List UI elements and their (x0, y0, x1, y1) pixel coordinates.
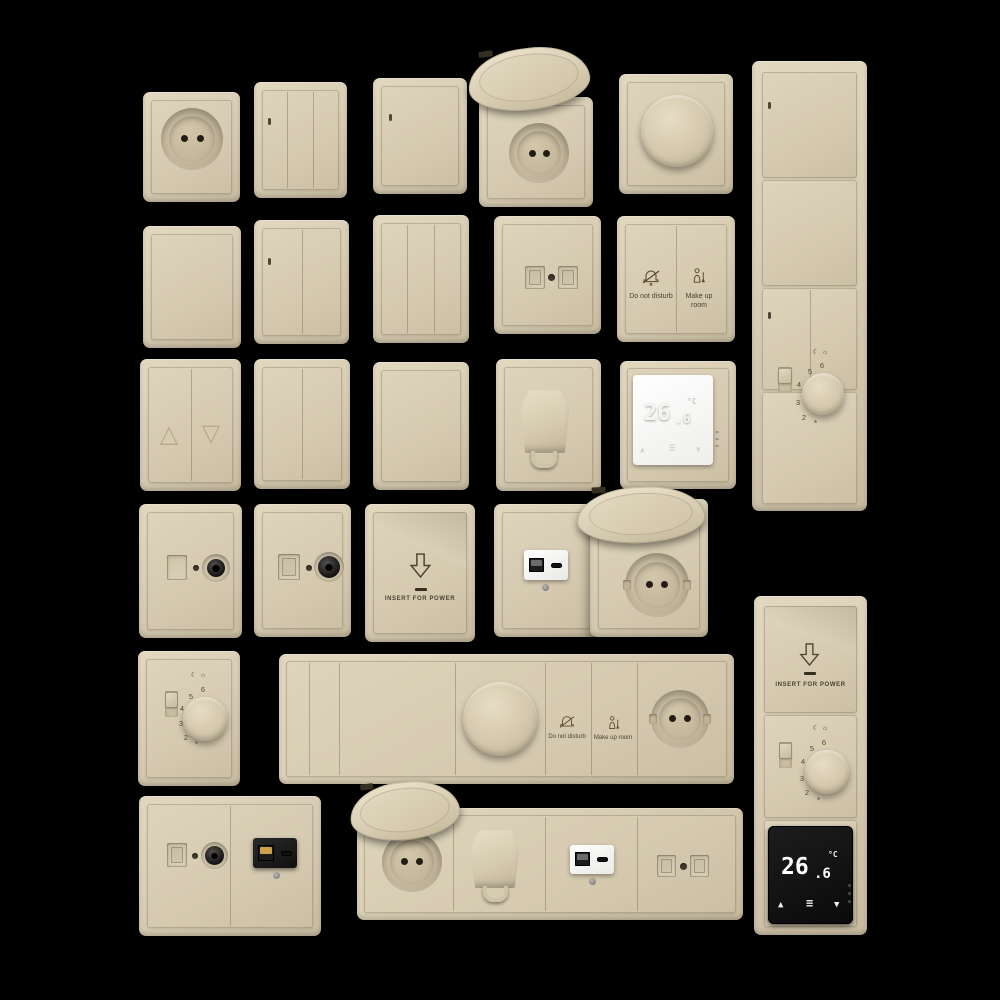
night-symbol: ☾ (813, 349, 822, 356)
switch-section (762, 180, 857, 286)
rocker-face (381, 223, 461, 335)
pin-hole (684, 715, 691, 722)
dimmer-knob (463, 682, 537, 756)
insert-card-arrow-icon (408, 552, 433, 579)
data-jack (558, 266, 578, 289)
data-jack (167, 843, 187, 867)
side-tick (715, 431, 719, 433)
lid-face (476, 48, 581, 107)
thermostat-mode-symbols: ☾☼ (808, 724, 836, 732)
vertical-multipanel-1: ☾☼ 6 5 4 3 2 * (752, 61, 867, 511)
rocker-face (151, 234, 233, 340)
digital-thermostat-white: °C 26 .6 ▲ ≡ ▼ (620, 361, 736, 489)
pin-hole (401, 858, 408, 865)
dual-data-outlet (494, 216, 601, 334)
pin-hole (543, 150, 550, 157)
data-jack (167, 555, 187, 580)
insert-card-arrow-icon (798, 642, 821, 667)
thermostat-knob (802, 373, 844, 415)
round-socket-plate (143, 92, 240, 202)
switch-1gang-blank (143, 226, 241, 348)
slider-knob (780, 744, 791, 758)
indicator-lens (768, 102, 771, 109)
thermostat-slider (778, 367, 792, 392)
side-led (848, 892, 851, 895)
seam (309, 663, 310, 774)
socket-face (151, 100, 232, 194)
lid-latch (360, 783, 374, 790)
thermostat-mode-symbols: ☾☼ (186, 671, 214, 679)
screw (273, 872, 280, 879)
data-jack (278, 554, 300, 580)
pin-hole (181, 135, 188, 142)
frost-symbol: * (814, 419, 817, 428)
seam (313, 92, 314, 188)
dial-number: 4 (798, 757, 808, 766)
frost-symbol: * (817, 796, 820, 805)
dial-number: 2 (181, 733, 191, 742)
insert-for-power-label: INSERT FOR POWER (373, 596, 467, 602)
day-symbol: ☼ (822, 725, 831, 732)
pin-hole (669, 715, 676, 722)
socket-well (634, 562, 680, 608)
usb-a-port (529, 558, 544, 572)
side-led (848, 884, 851, 887)
jack-opening (171, 847, 183, 863)
cable-spout (468, 830, 520, 888)
day-symbol: ☼ (822, 349, 831, 356)
dnd-mur-switch: Do not disturb Make up room (617, 216, 735, 342)
seam (339, 663, 340, 774)
up-arrow: ▲ (640, 445, 645, 454)
dial-number: 6 (198, 685, 208, 694)
dial-number: 2 (799, 413, 809, 422)
socket-recess (161, 108, 223, 170)
coax-hole (212, 564, 220, 572)
down-arrow: ▼ (696, 445, 701, 454)
seam (637, 817, 638, 911)
seam (453, 817, 454, 911)
data-jack (690, 855, 709, 877)
pin-hole (646, 581, 653, 588)
seam (191, 369, 192, 480)
ground-clip (623, 580, 631, 590)
rocker-face (381, 86, 459, 186)
usb-a-port (258, 845, 274, 861)
indicator-lens (268, 118, 271, 125)
jack-opening (661, 859, 672, 873)
outlet-face (262, 512, 343, 629)
unit-label: °C (828, 850, 838, 859)
menu-icon: ≡ (806, 896, 813, 910)
usb-c-port (281, 851, 292, 856)
dial-number: 6 (819, 738, 829, 747)
jack-opening (282, 558, 296, 576)
usb-c-port (551, 563, 562, 568)
status-led-slot (415, 588, 427, 591)
lid-face (358, 783, 452, 836)
tv-data-outlet-2 (254, 504, 351, 637)
slider-knob (779, 369, 791, 383)
side-tick (715, 445, 719, 447)
insert-for-power-label: INSERT FOR POWER (764, 682, 857, 688)
seam (230, 806, 231, 925)
data-jack (657, 855, 676, 877)
blinds-up-glyph: △ (154, 419, 184, 450)
cable-outlet (496, 359, 601, 491)
card-pocket-face: INSERT FOR POWER (373, 512, 467, 634)
dial-number: 3 (797, 774, 807, 783)
side-tick (715, 438, 719, 440)
jack-opening (529, 270, 541, 285)
mur-label: Make up room (591, 735, 635, 743)
pin-hole (661, 581, 668, 588)
socket-well (169, 116, 215, 162)
make-up-room-icon (605, 715, 622, 732)
thermostat-mode-symbols: ☾☼ (808, 348, 836, 356)
socket-face (487, 105, 585, 199)
seam (434, 225, 435, 333)
usb-a-port (575, 852, 590, 866)
switch-2gang-indicator (254, 220, 349, 344)
socket-well (517, 131, 561, 175)
seam (302, 369, 303, 478)
usb-c-port (597, 857, 608, 862)
coax-connector (314, 552, 344, 582)
do-not-disturb-icon (641, 268, 661, 286)
socket-with-lid-plate (479, 97, 593, 207)
unit-label: °C (687, 397, 697, 406)
switch-1gang (373, 362, 469, 490)
tv-usb-combo-plate (139, 796, 321, 936)
lid-latch (591, 487, 605, 494)
rocker-face (262, 228, 341, 336)
seam (545, 817, 546, 911)
jack-opening (694, 859, 705, 873)
socket-recess (625, 553, 689, 617)
night-symbol: ☾ (191, 672, 200, 679)
center-dot (548, 274, 555, 281)
usb-module (524, 550, 568, 580)
socket-well (390, 840, 434, 884)
ground-clip (683, 580, 691, 590)
combo-face (147, 804, 313, 928)
dial-number: 3 (793, 398, 803, 407)
night-symbol: ☾ (813, 725, 822, 732)
screw (589, 878, 596, 885)
switch-section (762, 72, 857, 178)
data-jack (525, 266, 545, 289)
do-not-disturb-icon (558, 714, 576, 730)
schuko-socket (651, 690, 709, 748)
dimmer-knob (641, 95, 713, 167)
schuko-socket (382, 832, 442, 892)
pin-hole (529, 150, 536, 157)
thermostat-screen: °C 26 .6 ▲ ≡ ▼ (633, 375, 713, 465)
tv-data-outlet-1 (139, 504, 242, 638)
keycard-holder: INSERT FOR POWER (365, 504, 475, 642)
vertical-multipanel-2: INSERT FOR POWER ☾☼ 6 5 4 3 2 * °C 26 .6… (754, 596, 867, 935)
blinds-down-glyph: ▽ (196, 418, 226, 449)
mur-label: Make up room (677, 292, 721, 310)
dial-number: 4 (177, 704, 187, 713)
center-dot (306, 565, 312, 571)
switch-2gang (254, 359, 350, 489)
coax-connector (201, 842, 228, 869)
slider-knob (166, 693, 177, 707)
seam (591, 663, 592, 774)
indicator-lens (268, 258, 271, 265)
usb-a-tongue (531, 560, 542, 566)
up-arrow: ▲ (778, 900, 783, 910)
usb-a-tongue (577, 854, 588, 860)
center-dot (680, 863, 687, 870)
ground-clip (703, 714, 711, 724)
switch-1gang-indicator (373, 78, 467, 194)
side-led (848, 900, 851, 903)
make-up-room-icon (689, 267, 708, 286)
thermostat-dial-plate: ☾☼ 6 5 4 3 2 * (138, 651, 240, 786)
day-symbol: ☼ (200, 672, 209, 679)
outlet-face (147, 512, 234, 630)
menu-icon: ≡ (669, 441, 676, 454)
jack-opening (562, 270, 574, 285)
down-arrow: ▼ (834, 900, 839, 910)
coax-hole (325, 563, 333, 571)
seam (676, 226, 677, 332)
frost-symbol: * (195, 740, 198, 749)
status-led-slot (804, 672, 816, 675)
dial-number: 2 (802, 788, 812, 797)
seam (545, 663, 546, 774)
screw (542, 584, 549, 591)
switch-3gang-vertical (254, 82, 347, 198)
coax-connector (202, 554, 230, 582)
dial-number: 5 (186, 692, 196, 701)
temperature-decimal: .6 (675, 412, 691, 427)
product-collage: ☾☼ 6 5 4 3 2 * (0, 0, 1000, 1000)
cable-spout (518, 390, 570, 453)
dimmer-plate (619, 74, 733, 194)
center-dot (193, 565, 199, 571)
seam (287, 92, 288, 188)
dnd-label: Do not disturb (629, 292, 673, 301)
horizontal-multipanel-1: Do not disturb Make up room (279, 654, 734, 784)
pin-hole (197, 135, 204, 142)
outlet-face (502, 512, 591, 629)
indicator-lens (768, 312, 771, 319)
pin-hole (416, 858, 423, 865)
lid-latch (478, 50, 493, 58)
dial-number: 3 (176, 719, 186, 728)
seam (407, 225, 408, 333)
dial-number: 4 (794, 380, 804, 389)
usb-module-black (253, 838, 297, 868)
dial-number: 6 (817, 361, 827, 370)
dial-number: 5 (807, 744, 817, 753)
rocker-face (381, 370, 461, 482)
seam (637, 663, 638, 774)
indicator-lens (389, 114, 392, 121)
thermostat-slider (779, 742, 792, 768)
center-dot (192, 853, 198, 859)
usb-a-tongue (260, 847, 272, 854)
ground-clip (649, 714, 657, 724)
rocker-face: △ ▽ (148, 367, 233, 483)
temperature-decimal: .6 (814, 866, 831, 882)
lid-face (587, 490, 694, 538)
rocker-face (262, 367, 342, 481)
seam (302, 230, 303, 334)
socket-well (659, 698, 701, 740)
thermostat-screen-black: °C 26 .6 ▲ ≡ ▼ (768, 826, 853, 924)
temperature-value: 26 (781, 854, 809, 880)
switch-3gang (373, 215, 469, 343)
seam (455, 663, 456, 774)
outlet-face (502, 224, 593, 326)
socket-recess (509, 123, 569, 183)
blinds-switch: △ ▽ (140, 359, 241, 491)
usb-module (570, 845, 614, 874)
rocker-face (262, 90, 339, 190)
dnd-label: Do not disturb (545, 734, 589, 742)
dial-number: 5 (805, 367, 815, 376)
temperature-value: 26 (644, 401, 671, 426)
cable-hook (483, 886, 508, 902)
keycard-section: INSERT FOR POWER (764, 606, 857, 713)
cable-hook (531, 451, 557, 468)
coax-hole (211, 852, 218, 859)
